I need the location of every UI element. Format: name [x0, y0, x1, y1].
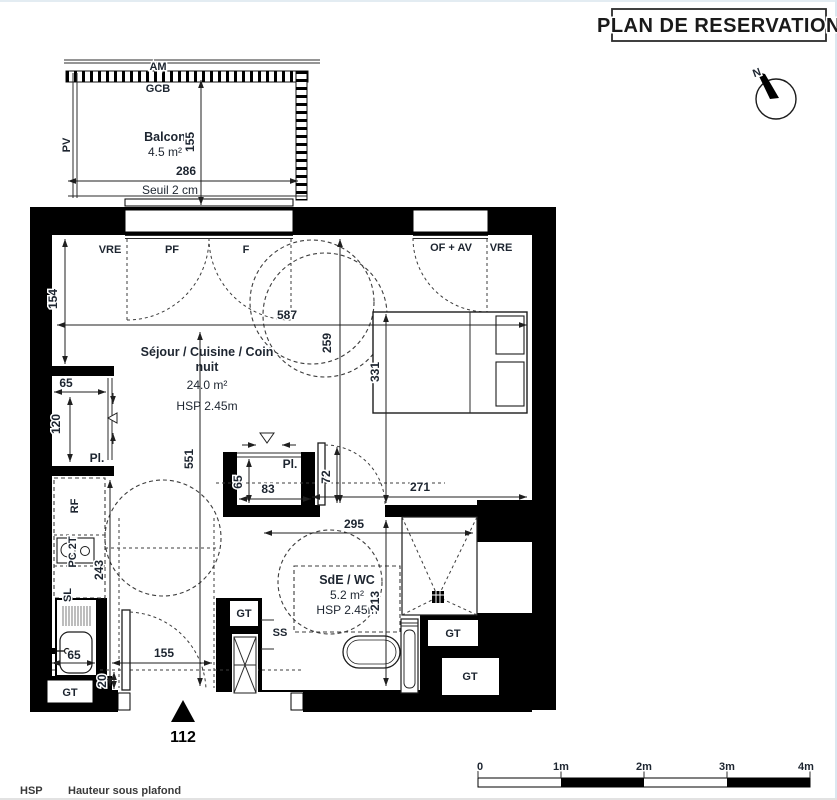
wall-right	[532, 207, 556, 710]
faucet-mount-icon	[52, 648, 57, 654]
dim-551: 551	[182, 449, 196, 469]
title-block: PLAN DE RESERVATION	[597, 9, 837, 41]
legend-meaning: Hauteur sous plafond	[68, 785, 181, 797]
bed	[373, 312, 527, 413]
dim-120: 120	[49, 414, 63, 434]
label-am: AM	[149, 61, 166, 73]
label-gcb: GCB	[146, 83, 171, 95]
label-pv: PV	[61, 137, 73, 152]
balcony-name: Balcon	[144, 130, 186, 144]
scalebar-label-1m: 1m	[553, 761, 569, 773]
scalebar-label-2m: 2m	[636, 761, 652, 773]
wall-bath-top-east	[385, 505, 477, 517]
turning-circle-kitchen	[105, 480, 221, 596]
ss-label: SS	[273, 627, 288, 639]
living-hsp: HSP 2.45m	[176, 399, 237, 413]
compass-north-label: N	[751, 66, 763, 80]
dim-20: 20	[95, 674, 109, 688]
window-pf-f	[125, 210, 293, 232]
balcony-seuil: Seuil 2 cm	[142, 183, 198, 197]
bathroom-area: 5.2 m²	[330, 588, 364, 602]
balcony: AM GCB PV Balcon 4.5 m² Seuil 2 cm 155 2…	[61, 60, 320, 206]
dim-243: 243	[92, 560, 106, 580]
label-f: F	[243, 244, 250, 256]
dim-83: 83	[261, 482, 275, 496]
north-compass: N	[751, 66, 796, 119]
entrance-door-leaf	[122, 610, 130, 690]
midcloset-label: Pl.	[283, 457, 298, 471]
balcony-area: 4.5 m²	[148, 145, 182, 159]
living-name-1: Séjour / Cuisine / Coin	[141, 345, 274, 359]
left-closet: 65 120 Pl.	[49, 376, 117, 465]
bathroom-name: SdE / WC	[319, 573, 375, 587]
gt-label-kitchen: GT	[62, 687, 78, 699]
legend-abbr: HSP	[20, 785, 43, 797]
wall-closet-post-right	[301, 452, 315, 516]
dim-65-mid: 65	[231, 475, 245, 489]
gt-label-column: GT	[236, 608, 252, 620]
dim-155-balcony: 155	[183, 132, 197, 152]
label-vre-left: VRE	[99, 244, 122, 256]
dim-72: 72	[319, 470, 333, 484]
gt-label-2: GT	[462, 671, 478, 683]
scalebar-seg-3-4	[727, 778, 810, 787]
wall-right-step	[477, 500, 532, 542]
dim-259: 259	[320, 333, 334, 353]
bathroom-door-swing	[325, 445, 385, 505]
compass-circle	[756, 79, 796, 119]
door-frame-left	[118, 693, 130, 710]
slide-direction-icon	[260, 433, 274, 443]
wall-left	[30, 207, 52, 712]
dim-213: 213	[368, 591, 382, 611]
floor-plan-svg: PLAN DE RESERVATION N AM GCB PV Balcon 4…	[0, 0, 837, 800]
label-of-av: OF + AV	[430, 242, 473, 254]
dim-331: 331	[368, 362, 382, 382]
sink-label: SL	[62, 588, 74, 602]
leftcloset-label: Pl.	[90, 451, 105, 465]
wall-leftcloset-bottom	[52, 466, 114, 476]
wall-leftcloset-top	[52, 366, 114, 376]
dim-587: 587	[277, 308, 297, 322]
label-pf: PF	[165, 244, 179, 256]
plan-title: PLAN DE RESERVATION	[597, 15, 837, 37]
balcony-threshold	[125, 199, 293, 206]
bathroom: GT GT SdE / WC 5.2 m² HSP 2.45m 295 213	[264, 517, 499, 695]
scalebar-label-3m: 3m	[719, 761, 735, 773]
label-vre-right: VRE	[490, 242, 513, 254]
scalebar-label-0: 0	[477, 761, 483, 773]
dim-271: 271	[410, 480, 430, 494]
scale-bar: 0 1m 2m 3m 4m	[477, 761, 814, 787]
dim-65-sink: 65	[67, 648, 81, 662]
dim-65-left: 65	[59, 376, 73, 390]
door-frame-right	[291, 693, 303, 710]
toilet-bowl	[343, 636, 400, 668]
scalebar-label-4m: 4m	[798, 761, 814, 773]
window-of-av	[413, 210, 488, 232]
living-name-2: nuit	[196, 360, 220, 374]
living-area: 24.0 m²	[187, 378, 228, 392]
scalebar-seg-1-2	[561, 778, 644, 787]
entrance-door-dim: 112	[170, 729, 196, 746]
cooktop-label: PC 2T	[67, 536, 79, 567]
fridge-label: RF	[69, 498, 81, 513]
dim-286: 286	[176, 164, 196, 178]
pillow-2	[496, 362, 524, 406]
dim-154: 154	[46, 289, 60, 309]
dim-155-corridor: 155	[154, 646, 174, 660]
gt-label-1: GT	[445, 628, 461, 640]
legend: HSP Hauteur sous plafond	[20, 785, 181, 797]
entrance-opening	[118, 692, 303, 712]
floor-plan-page: PLAN DE RESERVATION N AM GCB PV Balcon 4…	[0, 0, 837, 800]
shower-drain-icon	[432, 591, 444, 603]
pillow-1	[496, 316, 524, 354]
dim-295: 295	[344, 517, 364, 531]
